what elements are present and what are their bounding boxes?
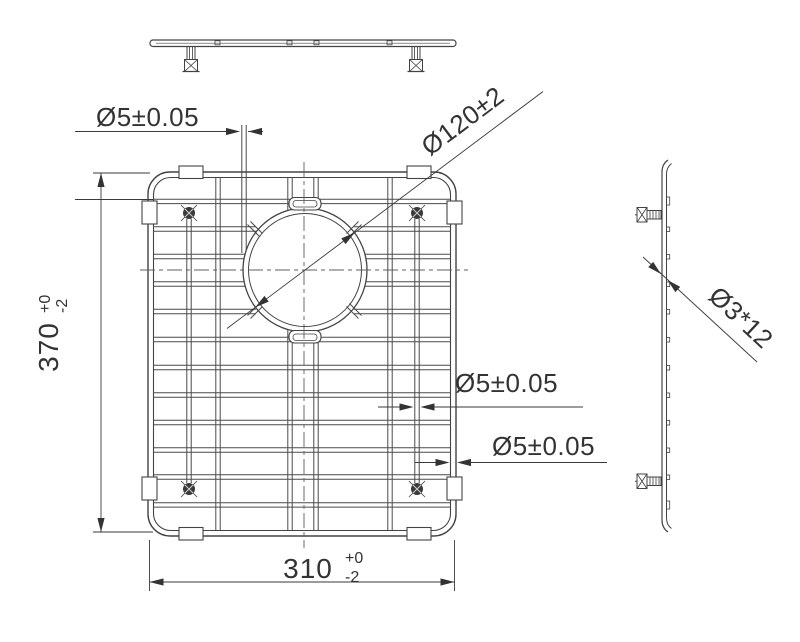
top-view-foot-right <box>408 47 425 72</box>
sink-grid-drawing: Ø5±0.05 Ø120±2 370 +0 -2 <box>0 0 800 642</box>
foot-screw <box>409 205 425 221</box>
dim-height-value: 370 <box>33 322 64 372</box>
dimension-rim-wire: Ø5±0.05 <box>415 431 607 466</box>
dim-width-lower-tol: -2 <box>345 569 359 586</box>
dim-width-upper-tol: +0 <box>345 550 363 567</box>
side-view <box>635 160 672 532</box>
dim-height-upper-tol: +0 <box>37 295 54 313</box>
top-view-foot-left <box>183 47 200 72</box>
technical-drawing-page: Ø5±0.05 Ø120±2 370 +0 -2 <box>0 0 800 642</box>
dimension-mid-wire: Ø5±0.05 <box>378 368 583 411</box>
front-view <box>140 125 468 548</box>
dim-rim-wire-label: Ø5±0.05 <box>492 431 595 461</box>
dimension-top-wire: Ø5±0.05 <box>75 102 263 135</box>
dim-height-lower-tol: -2 <box>54 299 71 313</box>
dim-width-value: 310 <box>283 553 333 584</box>
ring-tab-bottom <box>289 331 321 344</box>
ring-tab-top <box>289 198 321 211</box>
top-view-wire-ticks <box>215 41 392 45</box>
dimension-width: 310 +0 -2 <box>150 540 455 591</box>
dim-top-wire-label: Ø5±0.05 <box>96 102 199 132</box>
top-view <box>150 40 456 72</box>
dim-foot-label: Ø3*12 <box>703 280 779 354</box>
foot-screw <box>181 205 197 221</box>
dim-mid-wire-label: Ø5±0.05 <box>455 368 558 398</box>
dimensions: Ø5±0.05 Ø120±2 370 +0 -2 <box>33 80 779 591</box>
foot-screw <box>409 481 425 497</box>
side-foot-top <box>635 208 661 223</box>
foot-screw <box>181 481 197 497</box>
dimension-foot: Ø3*12 <box>643 257 779 362</box>
dimension-height: 370 +0 -2 <box>33 173 153 532</box>
side-foot-bottom <box>635 474 661 489</box>
dim-circle-label: Ø120±2 <box>415 80 509 161</box>
